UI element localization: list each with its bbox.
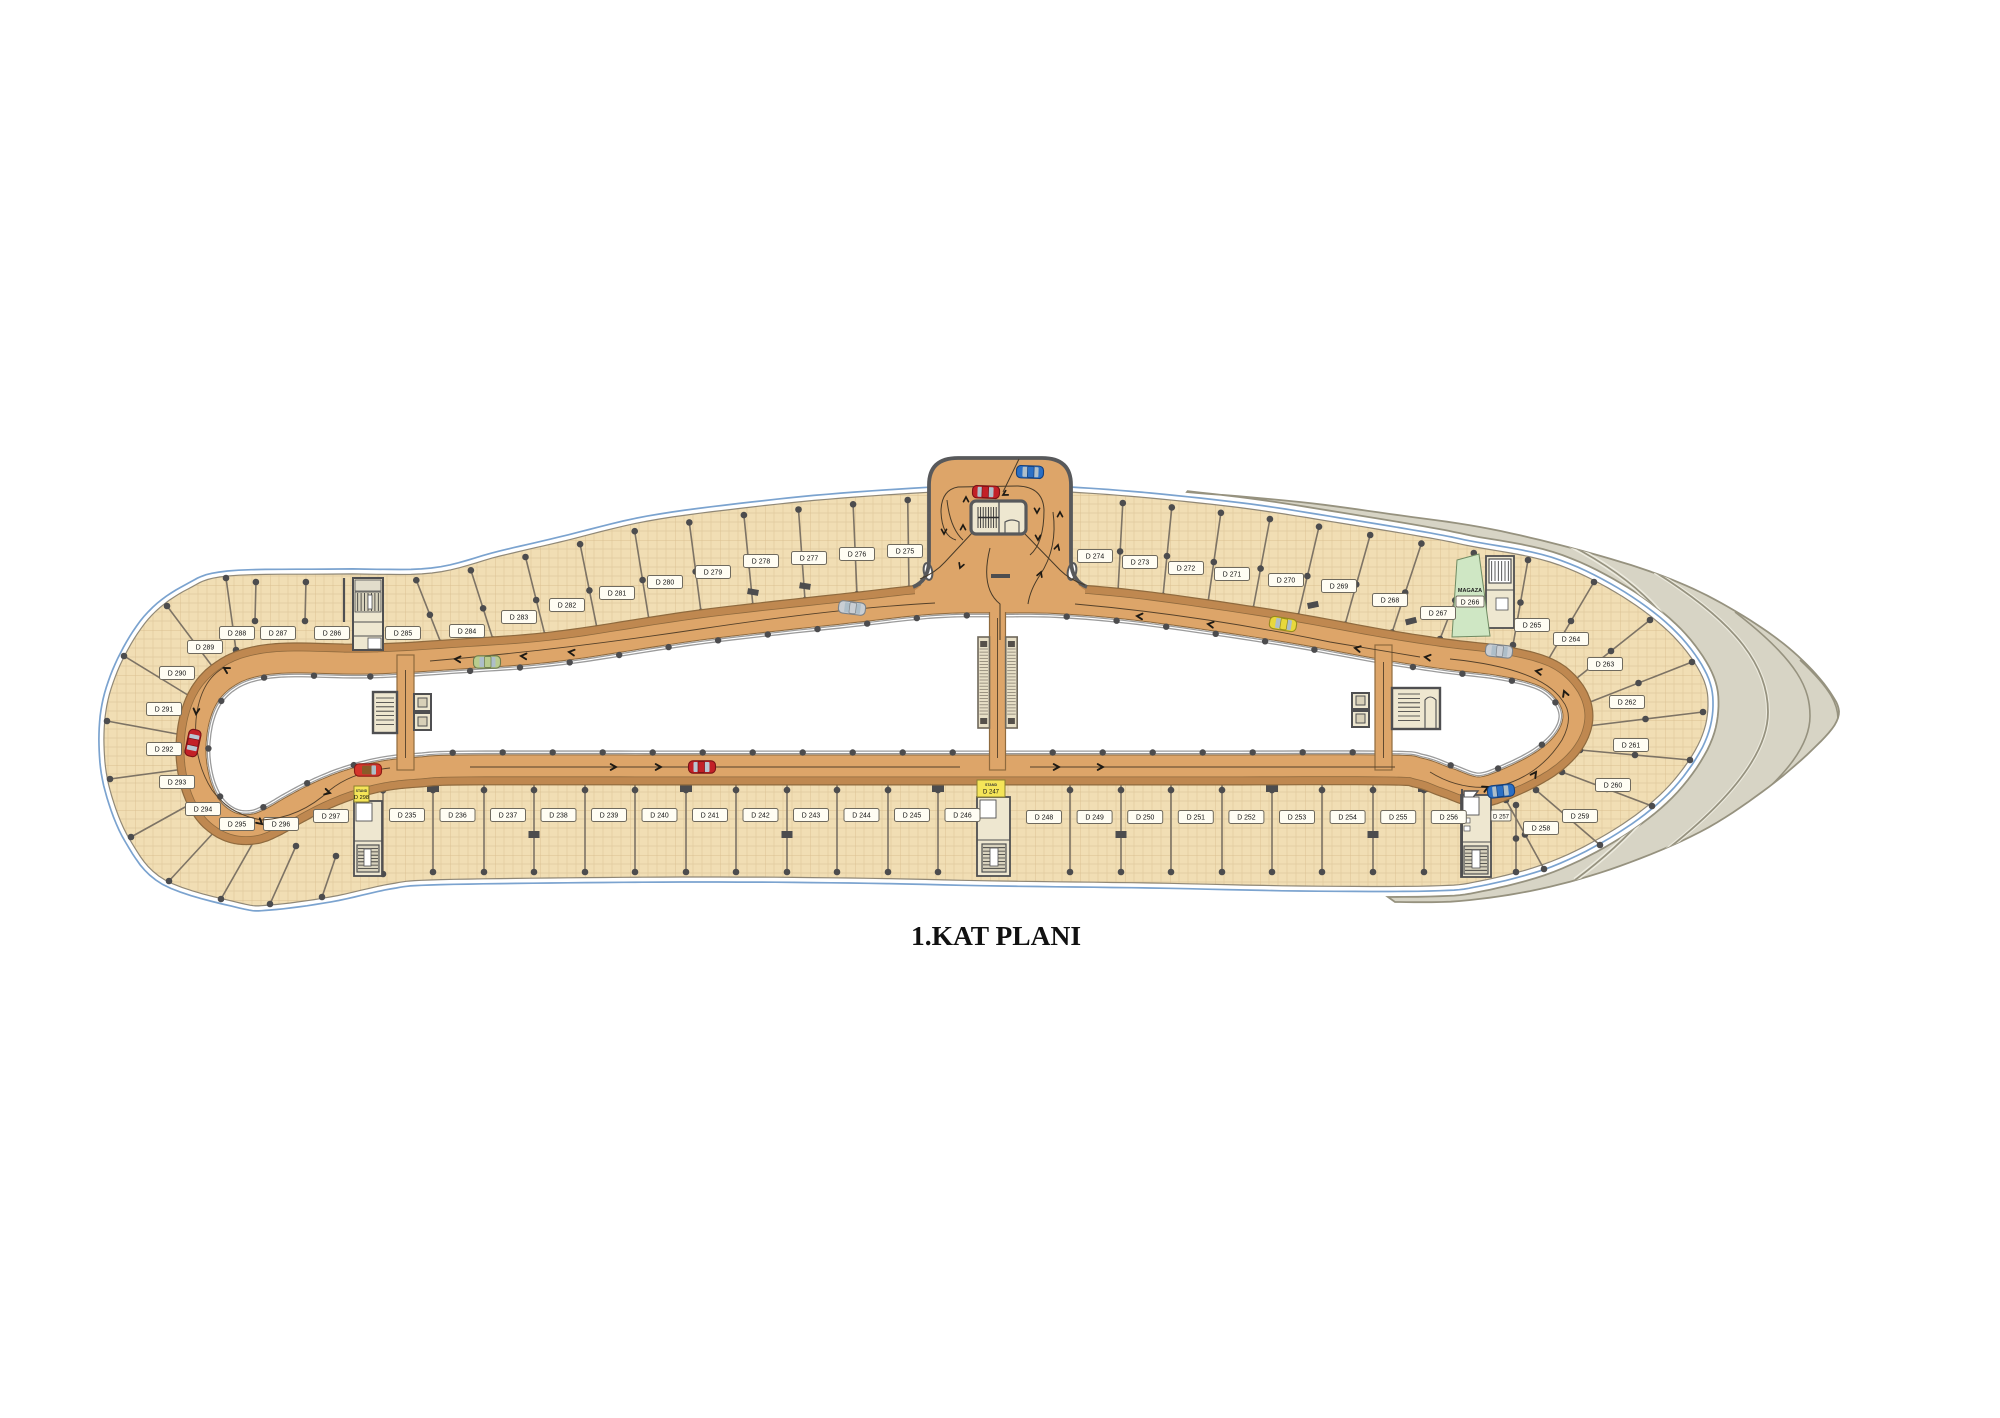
svg-text:D 281: D 281 <box>608 591 627 598</box>
svg-text:D 291: D 291 <box>155 707 174 714</box>
svg-text:D 253: D 253 <box>1288 815 1307 822</box>
svg-text:D 282: D 282 <box>558 603 577 610</box>
svg-text:D 272: D 272 <box>1177 566 1196 573</box>
svg-text:D 255: D 255 <box>1389 815 1408 822</box>
svg-text:D 242: D 242 <box>751 813 770 820</box>
svg-text:D 286: D 286 <box>323 631 342 638</box>
svg-text:D 288: D 288 <box>228 631 247 638</box>
svg-text:D 241: D 241 <box>701 813 720 820</box>
svg-text:D 263: D 263 <box>1596 662 1615 669</box>
svg-text:D 257: D 257 <box>1493 815 1510 821</box>
svg-text:D 252: D 252 <box>1237 815 1256 822</box>
svg-text:D 268: D 268 <box>1381 598 1400 605</box>
svg-text:D 280: D 280 <box>656 580 675 587</box>
svg-text:D 262: D 262 <box>1618 700 1637 707</box>
svg-text:D 256: D 256 <box>1440 815 1459 822</box>
svg-text:D 283: D 283 <box>510 615 529 622</box>
svg-text:D 271: D 271 <box>1223 572 1242 579</box>
svg-text:D 247: D 247 <box>983 790 1000 796</box>
svg-text:D 237: D 237 <box>499 813 518 820</box>
svg-text:D 289: D 289 <box>196 645 215 652</box>
svg-text:D 274: D 274 <box>1086 554 1105 561</box>
svg-text:D 265: D 265 <box>1523 623 1542 630</box>
svg-text:D 296: D 296 <box>272 822 291 829</box>
svg-text:D 259: D 259 <box>1571 814 1590 821</box>
svg-text:D 238: D 238 <box>549 813 568 820</box>
svg-text:D 250: D 250 <box>1136 815 1155 822</box>
svg-text:D 273: D 273 <box>1131 560 1150 567</box>
svg-text:MAGAZA: MAGAZA <box>1458 588 1482 594</box>
svg-text:D 243: D 243 <box>802 813 821 820</box>
svg-text:D 270: D 270 <box>1277 578 1296 585</box>
svg-text:D 297: D 297 <box>322 814 341 821</box>
svg-text:D 277: D 277 <box>800 556 819 563</box>
svg-text:D 295: D 295 <box>228 822 247 829</box>
svg-text:D 290: D 290 <box>168 671 187 678</box>
svg-text:D 240: D 240 <box>650 813 669 820</box>
svg-text:D 287: D 287 <box>269 631 288 638</box>
svg-text:D 235: D 235 <box>398 813 417 820</box>
svg-text:D 275: D 275 <box>896 549 915 556</box>
svg-text:D 276: D 276 <box>848 552 867 559</box>
svg-text:STAND: STAND <box>985 783 998 787</box>
svg-text:D 244: D 244 <box>852 813 871 820</box>
svg-text:1.KAT PLANI: 1.KAT PLANI <box>911 920 1081 951</box>
svg-text:D 292: D 292 <box>155 747 174 754</box>
svg-text:D 239: D 239 <box>600 813 619 820</box>
svg-text:D 267: D 267 <box>1429 611 1448 618</box>
svg-text:D 264: D 264 <box>1562 637 1581 644</box>
svg-text:D 236: D 236 <box>448 813 467 820</box>
svg-text:D 249: D 249 <box>1085 815 1104 822</box>
svg-text:D 298: D 298 <box>354 795 369 801</box>
svg-text:D 266: D 266 <box>1461 600 1480 607</box>
svg-text:D 269: D 269 <box>1330 584 1349 591</box>
svg-text:D 251: D 251 <box>1187 815 1206 822</box>
svg-text:D 254: D 254 <box>1338 815 1357 822</box>
svg-text:D 245: D 245 <box>903 813 922 820</box>
svg-text:D 284: D 284 <box>458 629 477 636</box>
svg-text:D 294: D 294 <box>194 807 213 814</box>
svg-text:D 258: D 258 <box>1532 826 1551 833</box>
svg-text:D 279: D 279 <box>704 570 723 577</box>
svg-text:D 261: D 261 <box>1622 743 1641 750</box>
svg-text:D 278: D 278 <box>752 559 771 566</box>
svg-text:D 246: D 246 <box>953 813 972 820</box>
svg-text:D 285: D 285 <box>394 631 413 638</box>
svg-text:STAND: STAND <box>356 789 368 793</box>
svg-text:D 293: D 293 <box>168 780 187 787</box>
svg-text:D 260: D 260 <box>1604 783 1623 790</box>
svg-text:D 248: D 248 <box>1035 815 1054 822</box>
